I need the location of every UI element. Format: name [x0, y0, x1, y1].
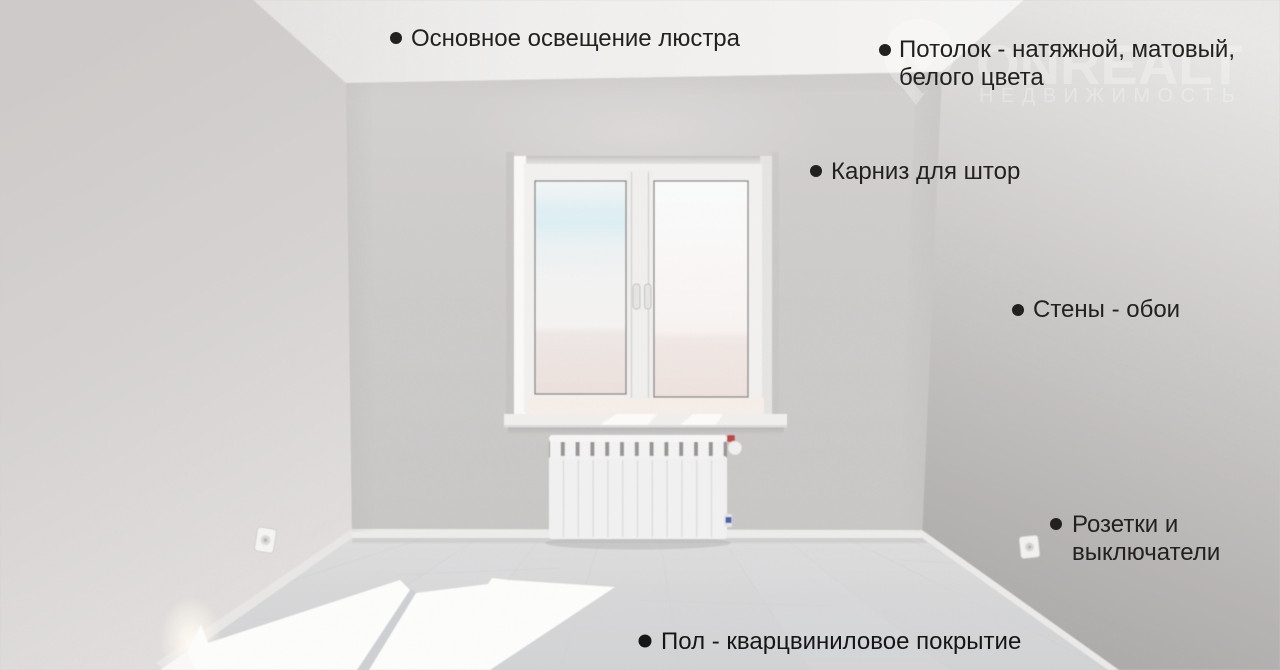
- svg-text:Основное освещение люстра: Основное освещение люстра: [411, 25, 741, 52]
- svg-text:Стены - обои: Стены - обои: [1033, 296, 1180, 323]
- svg-text:Потолок - натяжной, матовый,: Потолок - натяжной, матовый,: [899, 36, 1235, 63]
- svg-text:выключатели: выключатели: [1072, 539, 1220, 566]
- svg-text:Пол - кварцвиниловое покрытие: Пол - кварцвиниловое покрытие: [661, 628, 1021, 655]
- svg-text:Карниз для штор: Карниз для штор: [831, 158, 1020, 185]
- svg-text:Розетки и: Розетки и: [1072, 511, 1178, 538]
- svg-text:белого цвета: белого цвета: [899, 64, 1044, 91]
